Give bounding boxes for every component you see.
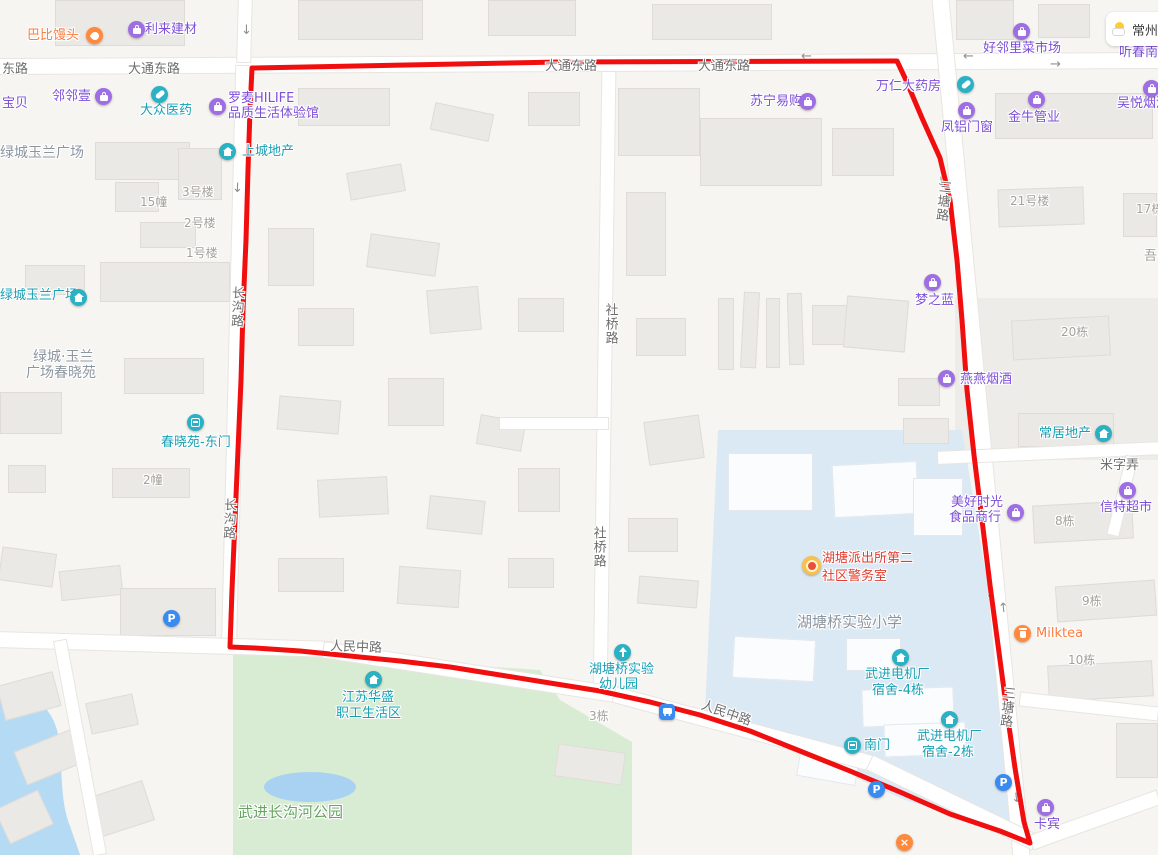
road-label: 米字弄 [1100,458,1139,474]
building [643,414,705,465]
poi-label[interactable]: 好邻里菜市场 [983,41,1061,57]
weather-city-label: 常州 [1132,20,1158,39]
poi-label[interactable]: 宿舍-4栋 [872,683,924,699]
building [903,418,949,444]
building [652,4,772,40]
building [718,298,734,370]
building-label: 21号楼 [1010,194,1049,208]
building [956,0,1014,40]
shop-bag-icon[interactable] [209,98,226,115]
building [618,88,700,156]
poi-label[interactable]: 利来建材 [145,22,197,38]
poi-label[interactable]: 梦之蓝 [915,293,954,309]
road-label: 社桥路 [590,526,606,568]
poi-label[interactable]: 巴比馒头 [27,28,79,44]
poi-label[interactable]: 食品商行 [949,510,1001,526]
milktea-icon[interactable] [1014,625,1031,642]
poi-label[interactable]: 听春南 [1119,45,1158,61]
building [426,495,485,535]
building [8,465,46,493]
poi-label[interactable]: 江苏华盛 [342,690,394,706]
building [366,233,440,276]
residence-icon[interactable] [892,649,909,666]
building-label: 10栋 [1068,653,1095,667]
south-gate-icon[interactable] [844,737,861,754]
building [898,378,940,406]
residence-icon[interactable] [941,711,958,728]
building [430,102,495,142]
building [488,0,576,36]
building [388,378,444,426]
building-label: 3号楼 [182,185,214,199]
building-label: 2号楼 [184,216,216,230]
east-gate-icon[interactable] [187,414,204,431]
real-estate-icon[interactable] [1095,425,1112,442]
building [626,192,666,276]
weather-widget[interactable]: 常州 [1106,12,1158,46]
building [0,392,62,434]
poi-label[interactable]: 宝贝 [2,96,28,112]
building [732,636,816,682]
map-canvas[interactable]: 常州 ↓←→←↓↓↓↑↓东路大通东路大通东路大通东路长沟路长沟路社桥路社桥路三塘… [0,0,1158,855]
road-label: 社桥路 [602,303,618,345]
building [843,295,909,352]
poi-label[interactable]: 幼儿园 [599,677,638,693]
baozi-shop-icon[interactable] [86,27,103,44]
poi-label[interactable]: 社区警务室 [822,569,887,585]
shop-bag-icon[interactable] [95,88,112,105]
kindergarten-icon[interactable] [614,644,631,661]
real-estate-icon[interactable] [219,143,236,160]
residence-icon[interactable] [70,289,87,306]
poi-label[interactable]: 信特超市 [1100,500,1152,516]
poi-label[interactable]: 大众医药 [140,103,192,119]
shop-bag-icon[interactable] [958,102,975,119]
building [554,743,626,785]
poi-label[interactable]: 湖塘桥实验 [589,662,654,678]
building [518,468,560,512]
shop-bag-icon[interactable] [128,21,145,38]
building [636,318,686,356]
building [268,228,314,286]
one-way-arrow-icon: ↓ [241,24,252,37]
building [832,461,920,518]
building [1116,723,1158,778]
pharmacy-icon[interactable] [957,76,974,93]
building [124,358,204,394]
building [298,0,423,40]
shop-bag-icon[interactable] [938,370,955,387]
building [740,292,760,369]
pharmacy-icon[interactable] [151,86,168,103]
building [628,518,678,552]
road-label: 长沟路 [227,286,244,329]
building [0,546,57,587]
building [700,118,822,186]
parking-icon[interactable]: P [868,781,885,798]
poi-label[interactable]: 万仁大药房 [876,79,941,95]
building [298,308,354,346]
poi-label[interactable]: 凤铝门窗 [941,120,993,136]
poi-label[interactable]: 苏宁易购 [750,94,802,110]
supermarket-icon[interactable] [1119,482,1136,499]
road-label: 三塘路 [932,179,952,222]
poi-label[interactable]: 吴悦烟酒 [1117,96,1158,112]
building [508,558,554,588]
sun-cloud-icon [1112,21,1128,37]
road-label: 大通东路 [545,59,597,75]
road-label: 长沟路 [219,498,236,541]
park-label: 武进长沟河公园 [238,803,343,821]
road-label: 大通东路 [128,62,180,78]
area-label: 湖塘桥实验小学 [797,613,902,631]
pond-area [264,772,356,802]
building-label: 吾 [1144,249,1157,265]
market-icon[interactable] [1013,23,1030,40]
building [59,565,124,601]
building-label: 3栋 [589,709,609,723]
building [637,575,699,608]
shop-bag-icon[interactable] [924,274,941,291]
one-way-arrow-icon: ↓ [232,182,243,195]
police-badge-icon[interactable] [802,556,821,575]
parking-icon[interactable]: P [995,774,1012,791]
poi-label[interactable]: 湖塘派出所第二 [822,551,913,567]
building [1038,4,1090,38]
building [426,286,482,334]
restaurant-icon[interactable]: × [896,834,913,851]
poi-label[interactable]: 卡宾 [1034,817,1060,833]
poi-label[interactable]: 武进电机厂 [917,729,982,745]
shop-bag-icon[interactable] [1037,799,1054,816]
building [787,293,805,365]
poi-label[interactable]: 宿舍-2栋 [922,745,974,761]
building [0,790,54,845]
building-label: 8栋 [1055,514,1075,528]
one-way-arrow-icon: ↓ [1010,791,1022,805]
residence-icon[interactable] [365,671,382,688]
one-way-arrow-icon: ↑ [997,602,1009,616]
road [613,687,878,771]
building [278,558,344,592]
building-label: 2幢 [143,473,163,487]
poi-label[interactable]: 常居地产 [1039,426,1091,442]
one-way-arrow-icon: ← [801,50,812,63]
poi-label[interactable]: 上城地产 [242,144,294,160]
poi-label[interactable]: 金牛管业 [1008,110,1060,126]
road [594,72,616,694]
building [0,671,62,721]
building-label: 20栋 [1061,325,1088,339]
shop-bag-icon[interactable] [1028,91,1045,108]
bus-stop-icon[interactable] [659,704,675,720]
road [500,418,608,429]
road-label: 人民中路 [330,639,383,656]
shop-bag-icon[interactable] [1143,80,1158,97]
building [832,128,894,176]
poi-label[interactable]: 南门 [864,738,890,754]
poi-label[interactable]: 燕燕烟酒 [960,372,1012,388]
building [397,566,461,608]
area-label: 广场春晓苑 [26,365,96,382]
building-label: 1号楼 [186,246,218,260]
poi-label[interactable]: 邻邻壹 [52,89,91,105]
one-way-arrow-icon: → [1050,58,1061,71]
building [95,142,190,180]
road-label: 大通东路 [698,59,750,75]
poi-label[interactable]: 品质生活体验馆 [228,106,319,122]
area-label: 绿城·玉兰 [33,349,93,366]
building-label: 9栋 [1082,594,1102,608]
building [85,693,139,734]
building [277,395,342,434]
building [518,298,564,332]
shop-bag-icon[interactable] [799,93,816,110]
building [317,476,389,518]
poi-label[interactable]: 罗麦HILIFE [228,91,294,107]
parking-icon[interactable]: P [163,610,180,627]
building-label: 15幢 [140,195,167,209]
poi-label[interactable]: 绿城玉兰广场 [0,288,78,304]
poi-label[interactable]: Milktea [1036,626,1083,642]
building [1047,660,1154,701]
building [346,163,406,200]
building [766,298,780,368]
building [528,92,580,126]
building [100,262,230,302]
area-label: 绿城玉兰广场 [0,145,84,162]
poi-label[interactable]: 武进电机厂 [865,667,930,683]
poi-label[interactable]: 职工生活区 [336,706,401,722]
shop-bag-icon[interactable] [1007,504,1024,521]
one-way-arrow-icon: ← [963,50,974,63]
building [728,453,813,511]
one-way-arrow-icon: ↓ [984,588,996,602]
building-label: 17栋 [1136,202,1158,216]
poi-label[interactable]: 春晓苑-东门 [161,435,231,451]
building [1055,580,1157,623]
poi-label[interactable]: 美好时光 [951,495,1003,511]
road-label: 东路 [2,62,28,78]
